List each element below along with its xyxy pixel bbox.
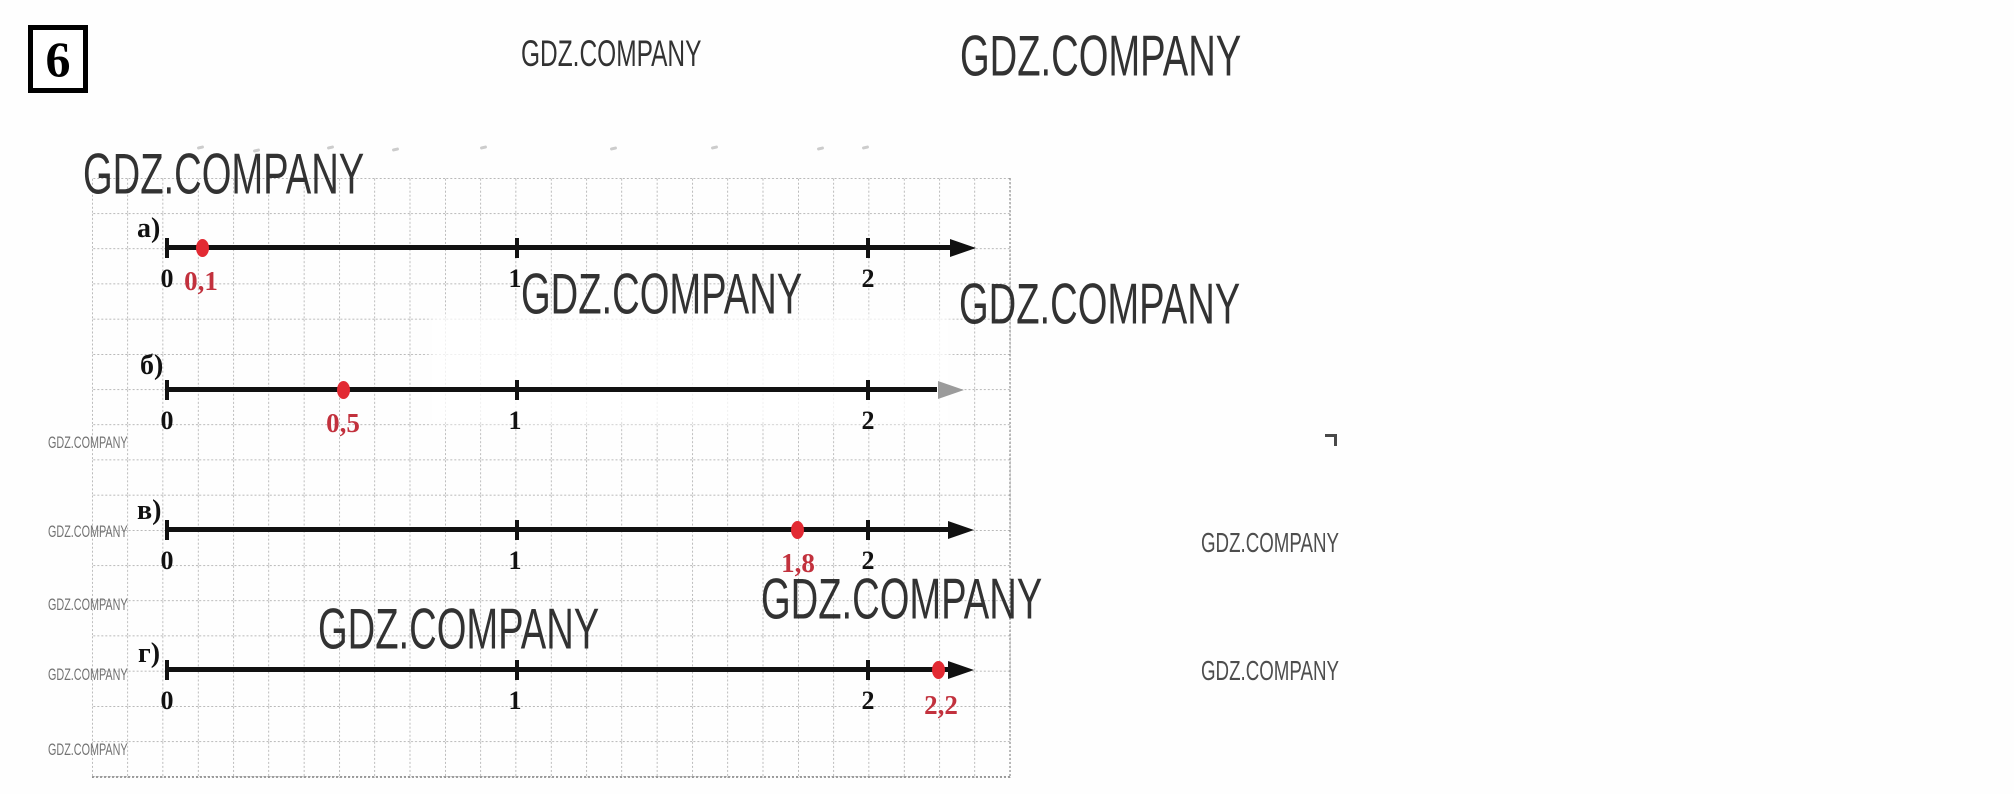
line-b-tick-label-0: 0 [161, 406, 174, 436]
line-v-tick-1 [515, 520, 519, 540]
watermark-left-margin-1: GDZ.COMPANY [48, 435, 128, 451]
noise-mark [711, 145, 718, 149]
exercise-number-box: 6 [28, 25, 88, 93]
line-g-point-label: 2,2 [924, 690, 958, 721]
watermark-left-margin-2: GDZ.COMPANY [48, 524, 128, 540]
line-b-tick-0 [165, 380, 169, 400]
line-g-tick-label-0: 0 [161, 686, 174, 716]
line-v-tick-0 [165, 520, 169, 540]
noise-mark [392, 147, 399, 151]
line-v-point-label: 1,8 [781, 548, 815, 579]
noise-mark [862, 145, 869, 149]
line-a-axis [167, 245, 952, 250]
line-v-tick-2 [866, 520, 870, 540]
watermark-top-right: GDZ.COMPANY [960, 28, 1241, 85]
line-a-point-label: 0,1 [184, 266, 218, 297]
line-g-tick-label-2: 2 [862, 686, 875, 716]
line-b-label: б) [140, 350, 163, 382]
watermark-left-margin-3: GDZ.COMPANY [48, 597, 128, 613]
line-v-tick-label-0: 0 [161, 546, 174, 576]
line-v-axis [167, 527, 950, 532]
noise-mark [480, 145, 487, 149]
line-v-label: в) [137, 495, 161, 527]
line-v-tick-label-1: 1 [509, 546, 522, 576]
line-v-arrow-icon [948, 521, 974, 539]
watermark-left-margin-4: GDZ.COMPANY [48, 667, 128, 683]
line-b-point [337, 381, 350, 399]
line-a-tick-2 [866, 238, 870, 258]
line-g-point [932, 661, 945, 679]
line-a-tick-1 [515, 238, 519, 258]
line-v-point [791, 521, 804, 539]
line-a-tick-label-0: 0 [161, 264, 174, 294]
scan-page: 6 GDZ.COMPANY GDZ.COMPANY GDZ.COMPANY GD… [0, 0, 2014, 794]
exercise-number: 6 [46, 30, 71, 88]
line-g-axis [167, 667, 950, 672]
line-a-arrow-icon [950, 239, 976, 257]
watermark-top-left: GDZ.COMPANY [83, 146, 364, 203]
line-g-label: г) [138, 638, 160, 670]
watermark-right-2: GDZ.COMPANY [1201, 656, 1339, 684]
line-b-tick-1 [515, 380, 519, 400]
watermark-line-a: GDZ.COMPANY [521, 266, 802, 323]
line-b-tick-2 [866, 380, 870, 400]
line-b-tick-label-1: 1 [509, 406, 522, 436]
watermark-below-line-v: GDZ.COMPANY [761, 571, 1042, 628]
noise-mark [817, 146, 824, 150]
watermark-above-line-g: GDZ.COMPANY [318, 601, 599, 658]
line-b-point-label: 0,5 [326, 408, 360, 439]
line-b-axis [167, 387, 937, 392]
line-v-tick-label-2: 2 [862, 546, 875, 576]
line-a-point [196, 239, 209, 257]
watermark-left-margin-5: GDZ.COMPANY [48, 742, 128, 758]
line-a-tick-label-1: 1 [509, 264, 522, 294]
watermark-mid-right: GDZ.COMPANY [959, 276, 1240, 333]
noise-mark [610, 146, 617, 150]
watermark-top-center: GDZ.COMPANY [521, 36, 701, 73]
line-g-tick-0 [165, 660, 169, 680]
line-b-arrow-icon [938, 381, 964, 399]
line-g-tick-label-1: 1 [509, 686, 522, 716]
line-a-label: а) [137, 213, 160, 245]
line-b-tick-label-2: 2 [862, 406, 875, 436]
line-g-tick-2 [866, 660, 870, 680]
line-a-tick-0 [165, 238, 169, 258]
scan-corner-artifact [1325, 434, 1337, 446]
line-g-arrow-icon [948, 661, 974, 679]
line-g-tick-1 [515, 660, 519, 680]
line-a-tick-label-2: 2 [862, 264, 875, 294]
watermark-right-1: GDZ.COMPANY [1201, 528, 1339, 556]
